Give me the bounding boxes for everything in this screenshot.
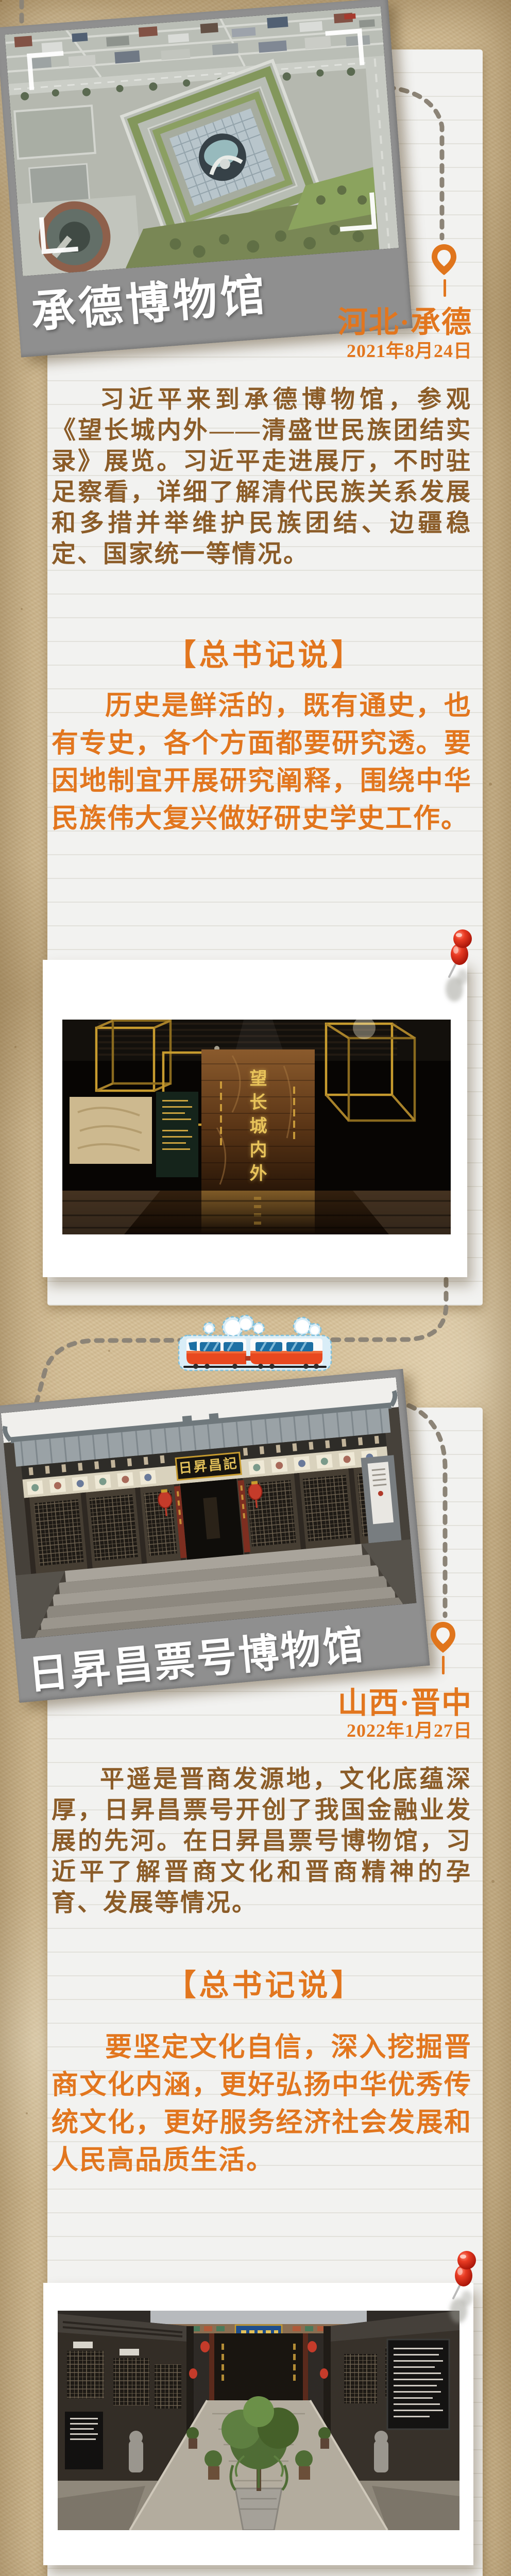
exhibition-hall-photo: 望长城内外 [62, 1020, 451, 1234]
leader-quote: 要坚定文化自信，深入挖掘晋商文化内涵，更好弘扬中华优秀传统文化，更好服务经济社会… [52, 2029, 472, 2179]
camera-viewfinder-icon [325, 28, 364, 67]
rishengchang-facade-photo: 日昇昌記 [1, 1377, 417, 1639]
location-pin-icon [431, 243, 457, 276]
visit-date: 2022年1月27日 [47, 1716, 483, 1742]
location-pin-icon [430, 1621, 456, 1654]
camera-viewfinder-icon [27, 51, 66, 90]
train-sticker-icon [177, 1314, 333, 1376]
courtyard-illustration [58, 2311, 459, 2530]
quote-section-header: 【总书记说】 [47, 631, 483, 674]
leader-quote: 历史是鲜活的，既有通史，也有专史，各个方面都要研究透。要因地制宜开展研究阐释，围… [52, 687, 472, 838]
courtyard-photo [58, 2311, 459, 2530]
pinned-photo-courtyard [43, 2283, 473, 2565]
facade-illustration [1, 1377, 417, 1639]
chengde-museum-aerial-photo [5, 6, 399, 276]
visit-description: 习近平来到承德博物馆，参观《望长城内外——清盛世民族团结实录》展览。习近平走进展… [52, 384, 472, 570]
camera-viewfinder-icon [39, 215, 78, 254]
pin-stem-dash [442, 1656, 445, 1674]
pinned-photo-exhibition-hall: 望长城内外 [43, 960, 467, 1277]
visit-description: 平遥是晋商发源地，文化底蕴深厚，日昇昌票号开创了我国金融业发展的先河。在日昇昌票… [52, 1764, 472, 1919]
red-pushpin-icon [446, 2248, 482, 2346]
red-pushpin-icon [442, 926, 478, 1024]
location-label: 河北·承德 [47, 298, 483, 341]
exhibit-wall-vertical-text: 望长城内外 [244, 1069, 269, 1188]
photo-card-rishengchang-museum: 日昇昌記 日昇昌票号博物馆 [0, 1369, 430, 1703]
camera-viewfinder-icon [337, 192, 377, 231]
quote-section-header: 【总书记说】 [47, 1961, 483, 2004]
infographic-page: 承德博物馆 河北·承德 2021年8月24日 习近平来到承德博物馆，参观《望长城… [0, 0, 511, 2576]
pin-stem-dash [444, 279, 446, 297]
visit-date: 2021年8月24日 [47, 336, 483, 363]
